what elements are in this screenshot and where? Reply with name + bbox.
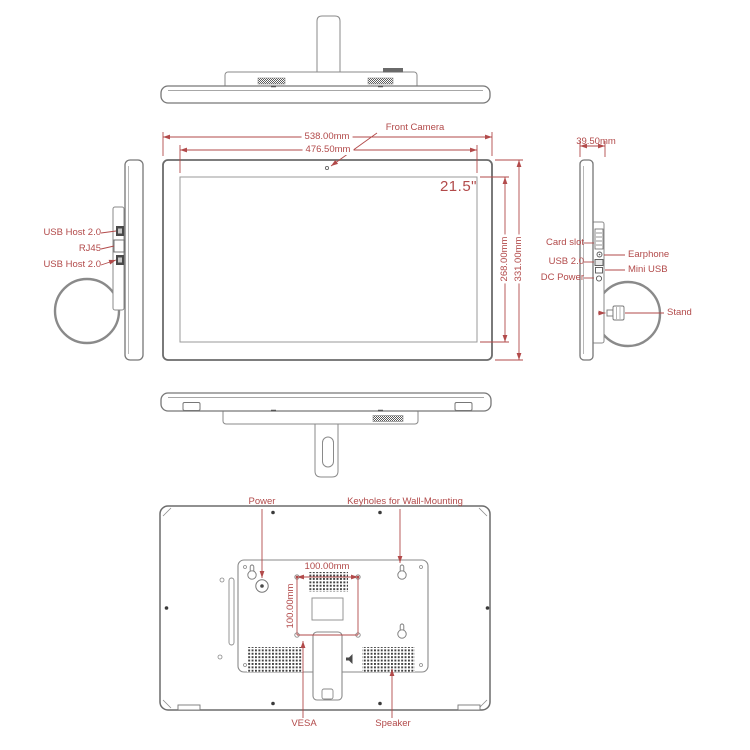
left-body bbox=[125, 160, 143, 360]
usb-host-top-label: USB Host 2.0 bbox=[43, 228, 101, 238]
depth-dim-label: 39.50mm bbox=[576, 137, 616, 147]
top-view-drawing bbox=[161, 16, 490, 103]
rj45-port bbox=[114, 240, 124, 252]
stand-knob bbox=[613, 306, 624, 320]
stand-pole-top bbox=[317, 16, 340, 78]
foot-left bbox=[183, 403, 200, 411]
display-width-dim-label: 476.50mm bbox=[303, 145, 354, 155]
technical-drawing-svg bbox=[0, 0, 750, 750]
stand-pole-bottom bbox=[315, 420, 338, 477]
overall-width-dim-label: 538.00mm bbox=[302, 132, 353, 142]
back-view-drawing bbox=[160, 506, 490, 710]
mini-usb-label: Mini USB bbox=[628, 265, 668, 275]
diagram-canvas: Front Camera 538.00mm 476.50mm 268.00mm … bbox=[0, 0, 750, 750]
speaker-label: Speaker bbox=[375, 719, 410, 729]
card-slot-label: Card slot bbox=[546, 238, 584, 248]
vent-bottom-right bbox=[373, 416, 403, 422]
speaker-grille-right bbox=[362, 647, 415, 672]
stand-base-left bbox=[55, 279, 119, 343]
right-side-view-drawing bbox=[580, 160, 660, 360]
back-foot-left bbox=[178, 705, 200, 710]
earphone-label: Earphone bbox=[628, 250, 669, 260]
keyholes-label: Keyholes for Wall-Mounting bbox=[347, 497, 463, 507]
device-body-bottom bbox=[161, 393, 491, 411]
usb-port-right bbox=[595, 260, 603, 266]
stand-base-right bbox=[596, 282, 660, 346]
device-body-top bbox=[161, 86, 490, 103]
back-foot-right bbox=[458, 705, 480, 710]
vent-top-right bbox=[368, 78, 393, 84]
cable-channel bbox=[229, 578, 234, 645]
dc-power-label: DC Power bbox=[541, 273, 584, 283]
bracket-tab bbox=[383, 68, 403, 73]
right-port-panel bbox=[592, 222, 604, 343]
usb20-label: USB 2.0 bbox=[549, 257, 584, 267]
usb-host-bottom-label: USB Host 2.0 bbox=[43, 260, 101, 270]
front-camera-label: Front Camera bbox=[386, 123, 445, 133]
rj45-label: RJ45 bbox=[79, 244, 101, 254]
vesa-width-dim-label: 100.00mm bbox=[302, 562, 353, 572]
overall-height-dim-label: 331.00mm bbox=[514, 235, 524, 284]
back-vent-grid bbox=[308, 571, 348, 592]
label-sticker bbox=[312, 598, 343, 620]
foot-right bbox=[455, 403, 472, 411]
vesa-height-dim-label: 100.00mm bbox=[286, 582, 296, 631]
screen-size-label: 21.5" bbox=[440, 179, 477, 195]
power-label: Power bbox=[249, 497, 276, 507]
mini-usb-port bbox=[596, 268, 603, 274]
vesa-label: VESA bbox=[291, 719, 316, 729]
stand-pole-notch bbox=[322, 689, 333, 699]
speaker-grille-left bbox=[247, 647, 303, 672]
stand-label: Stand bbox=[667, 308, 692, 318]
stand-knob-stem bbox=[607, 310, 613, 316]
dc-power-jack bbox=[596, 276, 601, 281]
display-height-dim-label: 268.00mm bbox=[500, 235, 510, 284]
vent-top-left bbox=[258, 78, 285, 84]
bottom-view-drawing bbox=[161, 393, 491, 477]
